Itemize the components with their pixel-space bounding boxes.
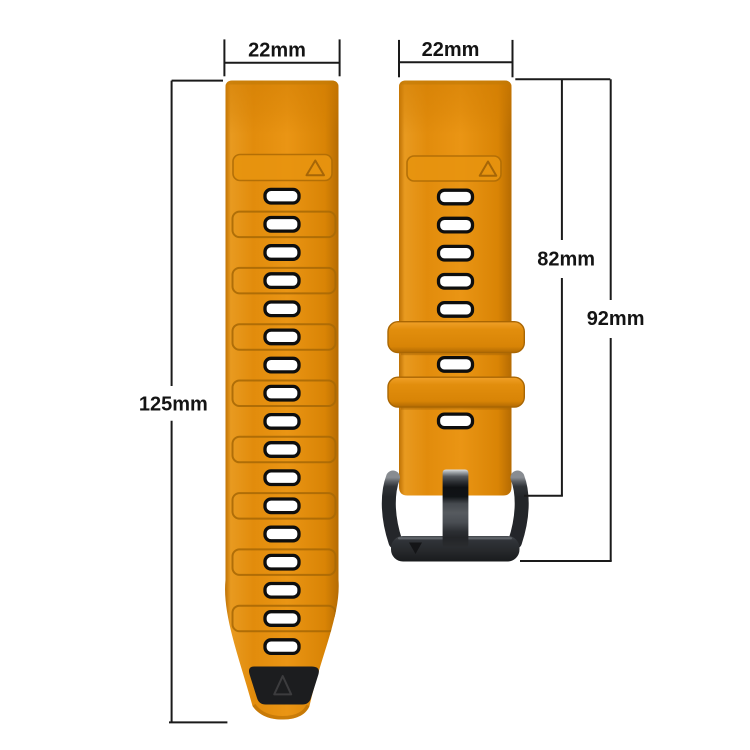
- svg-text:92mm: 92mm: [587, 308, 645, 330]
- svg-text:125mm: 125mm: [139, 394, 208, 416]
- svg-text:22mm: 22mm: [248, 40, 306, 62]
- svg-text:22mm: 22mm: [422, 39, 480, 61]
- svg-text:82mm: 82mm: [537, 249, 595, 271]
